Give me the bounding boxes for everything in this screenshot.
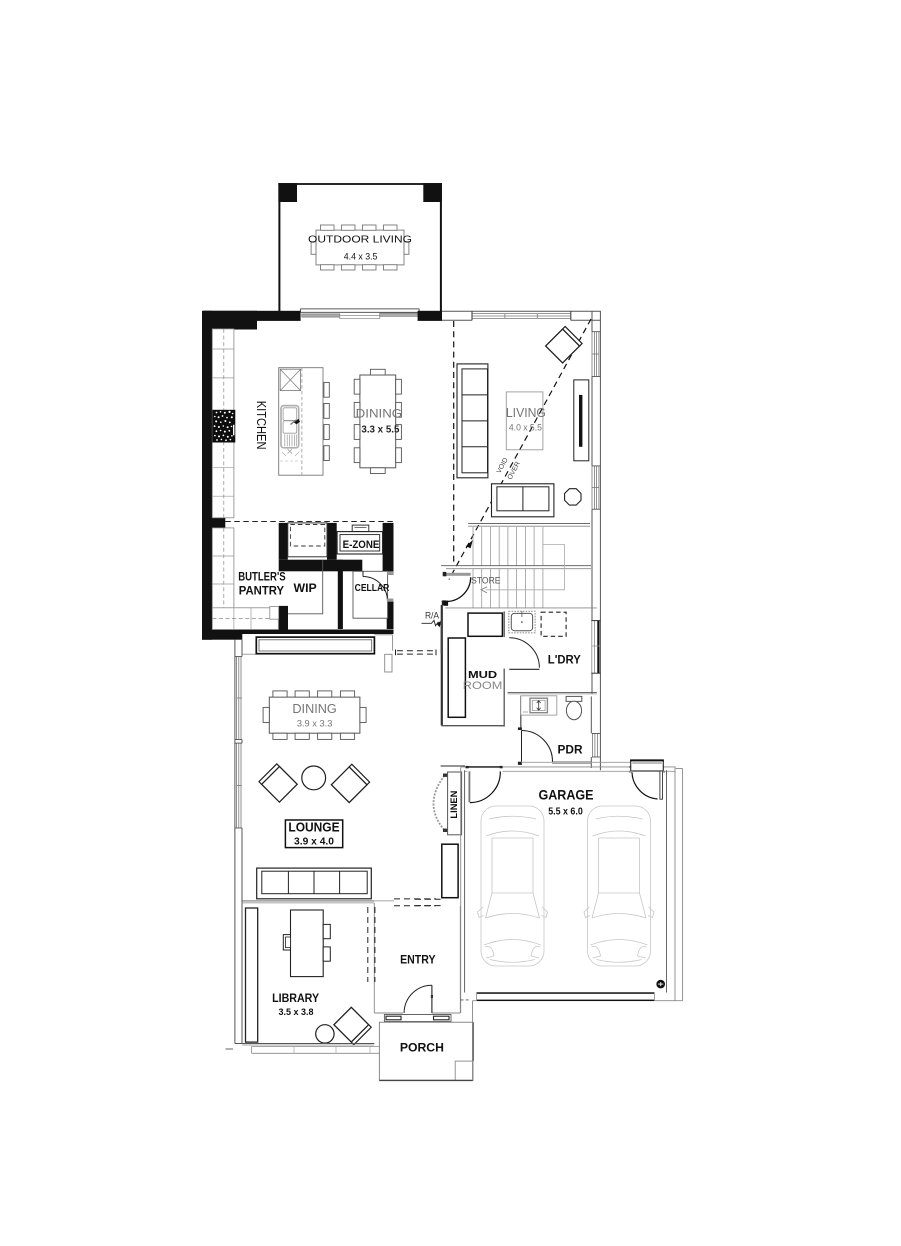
svg-text:4.4 x 3.5: 4.4 x 3.5	[344, 251, 378, 262]
svg-text:4.0 x 5.5: 4.0 x 5.5	[509, 423, 542, 434]
svg-text:DINING: DINING	[292, 702, 336, 716]
svg-text:OUTDOOR LIVING: OUTDOOR LIVING	[308, 235, 412, 246]
svg-text:ROOM: ROOM	[463, 680, 503, 692]
svg-text:3.9 x 4.0: 3.9 x 4.0	[294, 837, 335, 848]
svg-text:LOUNGE: LOUNGE	[288, 820, 339, 834]
svg-text:GARAGE: GARAGE	[538, 787, 593, 803]
svg-text:E-ZONE: E-ZONE	[343, 539, 380, 551]
svg-text:LIBRARY: LIBRARY	[272, 991, 319, 1005]
svg-text:STORE: STORE	[471, 575, 500, 585]
svg-text:KITCHEN: KITCHEN	[254, 401, 268, 450]
svg-text:OVER: OVER	[507, 461, 522, 481]
svg-text:PDR: PDR	[558, 742, 583, 756]
svg-text:DINING: DINING	[356, 407, 402, 421]
svg-text:3.5 x 3.8: 3.5 x 3.8	[279, 1007, 314, 1017]
svg-text:WIP: WIP	[294, 581, 317, 595]
svg-text:5.5 x 6.0: 5.5 x 6.0	[548, 805, 583, 817]
svg-text:LINEN: LINEN	[449, 791, 460, 819]
svg-text:PANTRY: PANTRY	[239, 583, 284, 597]
svg-text:L'DRY: L'DRY	[548, 652, 581, 666]
svg-text:3.3 x 5.5: 3.3 x 5.5	[361, 425, 399, 436]
svg-text:CELLAR: CELLAR	[355, 583, 390, 594]
svg-text:LIVING: LIVING	[506, 405, 546, 420]
svg-text:BUTLER'S: BUTLER'S	[238, 570, 285, 584]
svg-text:PORCH: PORCH	[400, 1040, 444, 1054]
svg-text:R/A: R/A	[425, 611, 440, 621]
svg-text:ENTRY: ENTRY	[400, 953, 435, 967]
svg-text:3.9 x 3.3: 3.9 x 3.3	[297, 718, 333, 729]
